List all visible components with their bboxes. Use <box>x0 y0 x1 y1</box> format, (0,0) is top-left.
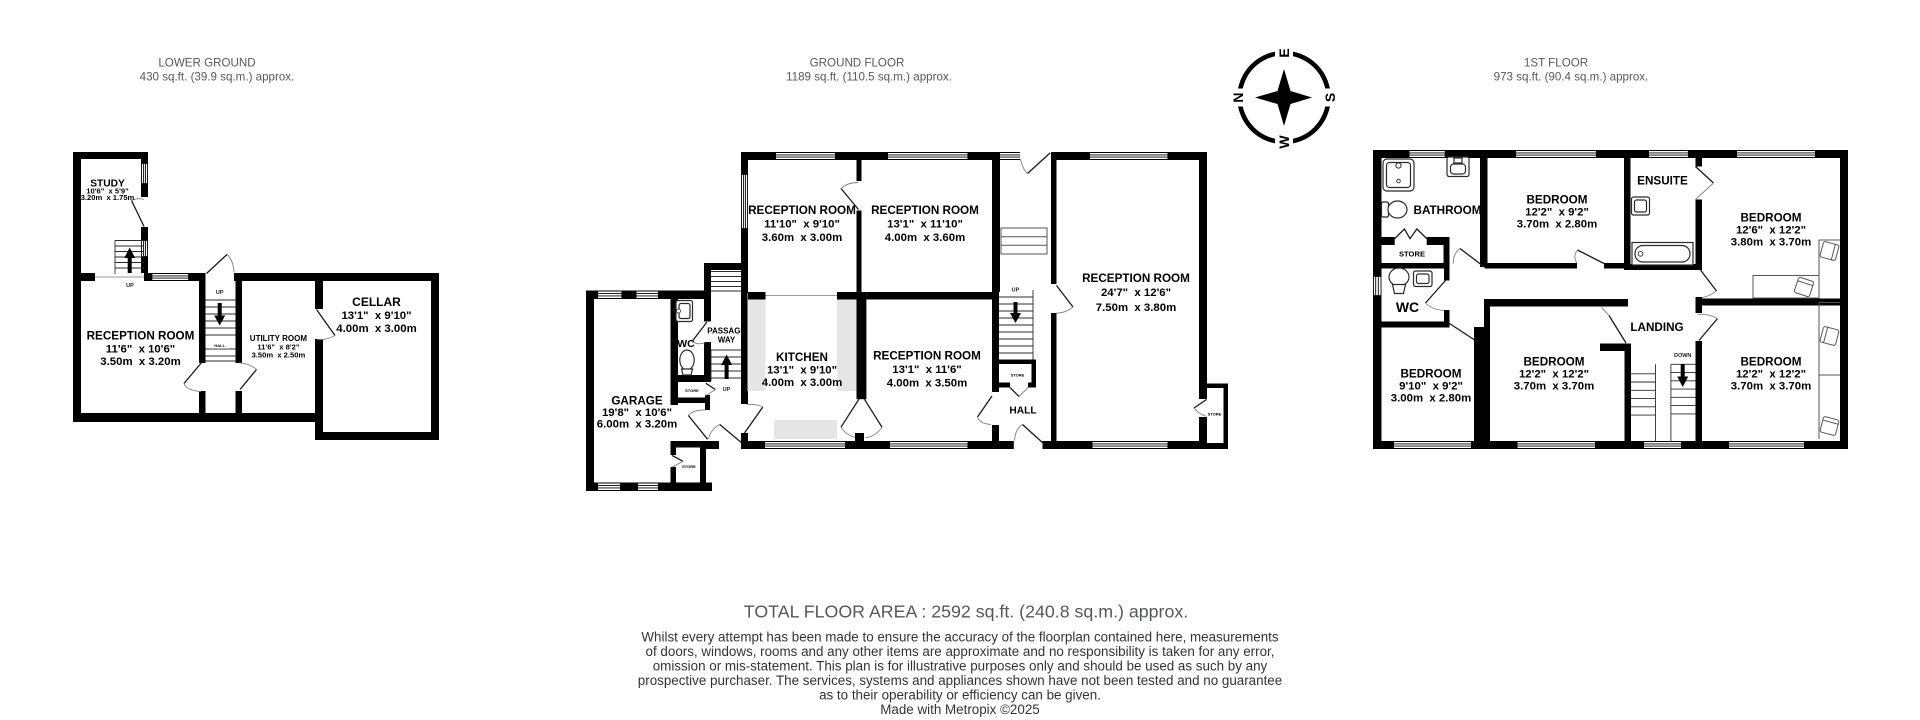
svg-text:6.00m x 3.20m: 6.00m x 3.20m <box>597 419 677 431</box>
svg-text:3.70m x 3.70m: 3.70m x 3.70m <box>1514 381 1594 393</box>
svg-text:STORE: STORE <box>1011 373 1025 378</box>
svg-text:BATHROOM: BATHROOM <box>1414 204 1482 217</box>
svg-text:STORE: STORE <box>682 464 696 469</box>
svg-text:RECEPTION ROOM: RECEPTION ROOM <box>87 330 195 343</box>
svg-text:KITCHEN: KITCHEN <box>776 351 828 364</box>
svg-text:Made with Metropix ©2025: Made with Metropix ©2025 <box>880 702 1039 717</box>
svg-text:BEDROOM: BEDROOM <box>1400 368 1461 381</box>
svg-text:Whilst every attempt has been: Whilst every attempt has been made to en… <box>641 630 1278 645</box>
svg-text:12'2" x 12'2": 12'2" x 12'2" <box>1736 369 1806 381</box>
svg-text:4.00m x 3.50m: 4.00m x 3.50m <box>887 378 967 390</box>
svg-text:RECEPTION ROOM: RECEPTION ROOM <box>1082 272 1190 285</box>
svg-text:3.50m x 2.50m: 3.50m x 2.50m <box>252 351 306 360</box>
svg-text:4.00m x 3.00m: 4.00m x 3.00m <box>336 323 416 335</box>
svg-text:UP: UP <box>723 387 731 393</box>
svg-text:GARAGE: GARAGE <box>611 395 663 408</box>
svg-text:13'1" x 9'10": 13'1" x 9'10" <box>767 365 837 377</box>
svg-text:S: S <box>1322 93 1338 102</box>
svg-text:GROUND FLOOR: GROUND FLOOR <box>810 57 905 70</box>
svg-text:973 sq.ft. (90.4 sq.m.) approx: 973 sq.ft. (90.4 sq.m.) approx. <box>1494 71 1649 84</box>
svg-text:UP: UP <box>216 290 224 296</box>
svg-text:9'10" x 9'2": 9'10" x 9'2" <box>1399 381 1463 393</box>
svg-text:STORE: STORE <box>1399 250 1425 259</box>
svg-text:LANDING: LANDING <box>1630 321 1683 334</box>
svg-text:4.00m x 3.60m: 4.00m x 3.60m <box>885 232 965 244</box>
svg-text:24'7" x 12'6": 24'7" x 12'6" <box>1101 287 1171 299</box>
svg-text:as to their operability or eff: as to their operability or efficiency ca… <box>819 688 1101 703</box>
svg-text:CELLAR: CELLAR <box>352 295 401 309</box>
svg-text:3.80m x 3.70m: 3.80m x 3.70m <box>1731 237 1811 249</box>
svg-text:BEDROOM: BEDROOM <box>1740 212 1801 225</box>
svg-text:13'1" x 11'6": 13'1" x 11'6" <box>892 364 961 376</box>
svg-text:3.70m x 3.70m: 3.70m x 3.70m <box>1731 381 1811 393</box>
svg-text:7.50m x 3.80m: 7.50m x 3.80m <box>1096 302 1176 314</box>
svg-text:RECEPTION ROOM: RECEPTION ROOM <box>873 350 981 363</box>
svg-text:1189 sq.ft. (110.5 sq.m.) appr: 1189 sq.ft. (110.5 sq.m.) approx. <box>786 71 952 84</box>
svg-text:3.20m x 1.75m: 3.20m x 1.75m <box>81 193 135 202</box>
svg-text:1ST FLOOR: 1ST FLOOR <box>1524 57 1588 70</box>
svg-text:3.60m x 3.00m: 3.60m x 3.00m <box>762 232 842 244</box>
svg-text:12'6" x 12'2": 12'6" x 12'2" <box>1736 225 1806 237</box>
svg-text:UP: UP <box>1012 288 1020 294</box>
svg-text:RECEPTION ROOM: RECEPTION ROOM <box>871 204 979 217</box>
svg-text:omission or mis-statement. Thi: omission or mis-statement. This plan is … <box>653 659 1268 674</box>
svg-text:STORE: STORE <box>685 388 699 393</box>
svg-text:11'6" x 10'6": 11'6" x 10'6" <box>106 344 175 356</box>
svg-text:of doors, windows, rooms and a: of doors, windows, rooms and any other i… <box>646 644 1275 659</box>
svg-text:W: W <box>1276 135 1292 149</box>
svg-text:E: E <box>1276 48 1292 57</box>
svg-text:3.00m x 2.80m: 3.00m x 2.80m <box>1391 393 1471 405</box>
svg-text:UP: UP <box>126 283 134 289</box>
svg-text:RECEPTION ROOM: RECEPTION ROOM <box>748 204 856 217</box>
svg-text:WC: WC <box>677 338 695 350</box>
svg-text:BEDROOM: BEDROOM <box>1523 356 1584 369</box>
svg-text:N: N <box>1230 92 1246 102</box>
svg-text:19'8" x 10'6": 19'8" x 10'6" <box>602 407 672 419</box>
svg-text:prospective purchaser. The ser: prospective purchaser. The services, sys… <box>638 673 1282 688</box>
svg-text:DOWN: DOWN <box>1674 353 1691 359</box>
svg-text:12'2" x 9'2": 12'2" x 9'2" <box>1525 207 1589 219</box>
svg-text:11'10" x 9'10": 11'10" x 9'10" <box>764 219 840 231</box>
svg-text:430 sq.ft. (39.9 sq.m.) approx: 430 sq.ft. (39.9 sq.m.) approx. <box>140 71 295 84</box>
svg-text:HALL: HALL <box>214 343 225 348</box>
svg-text:TOTAL FLOOR AREA : 2592 sq.ft.: TOTAL FLOOR AREA : 2592 sq.ft. (240.8 sq… <box>744 602 1188 622</box>
svg-text:3.70m x 2.80m: 3.70m x 2.80m <box>1517 219 1597 231</box>
svg-text:STORE: STORE <box>1208 412 1222 417</box>
svg-text:WC: WC <box>1396 299 1419 315</box>
svg-text:13'1" x 9'10": 13'1" x 9'10" <box>341 310 411 322</box>
svg-text:BEDROOM: BEDROOM <box>1526 194 1587 207</box>
svg-text:BEDROOM: BEDROOM <box>1740 356 1801 369</box>
svg-text:12'2" x 12'2": 12'2" x 12'2" <box>1519 369 1589 381</box>
svg-text:PASSAGE: PASSAGE <box>707 327 746 336</box>
svg-text:WAY: WAY <box>718 336 736 345</box>
svg-text:HALL: HALL <box>1009 406 1036 417</box>
svg-text:13'1" x 11'10": 13'1" x 11'10" <box>887 219 963 231</box>
svg-text:ENSUITE: ENSUITE <box>1637 175 1688 188</box>
svg-text:LOWER GROUND: LOWER GROUND <box>158 57 255 70</box>
svg-text:4.00m x 3.00m: 4.00m x 3.00m <box>762 377 842 389</box>
svg-text:3.50m x 3.20m: 3.50m x 3.20m <box>100 356 180 368</box>
